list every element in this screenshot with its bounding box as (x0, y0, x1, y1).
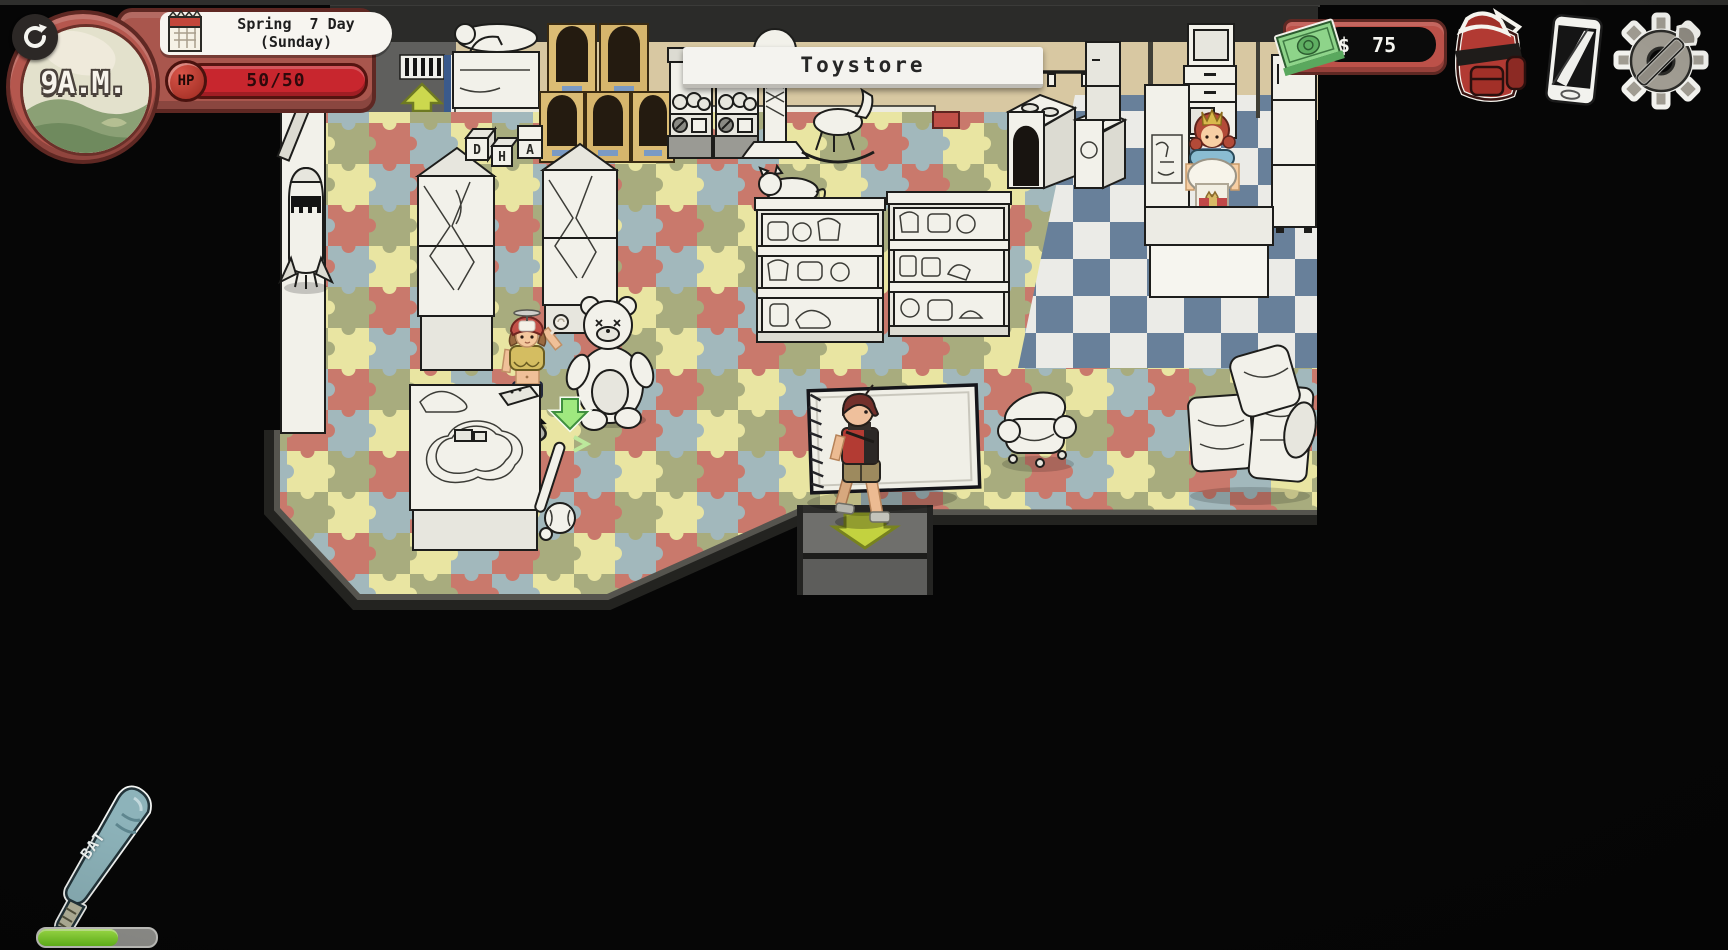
game-screen: D H A (0, 0, 1728, 950)
display-case-1 (418, 148, 494, 370)
backpack-icon (1437, 5, 1535, 109)
wall-sketch-picture (1152, 135, 1182, 183)
bat-icon (26, 780, 170, 936)
date-line2: (Sunday) (260, 33, 332, 51)
refresh-arrow-icon (20, 22, 50, 52)
calendar-icon (164, 5, 206, 55)
item-durability-bar (36, 927, 158, 948)
gear-wrench-icon (1610, 11, 1712, 111)
hotbar-item-bat[interactable] (26, 780, 170, 936)
time-label: 9A.M. (8, 66, 158, 101)
hp-label: HP (178, 73, 195, 89)
inventory-button[interactable] (1437, 5, 1535, 109)
hp-value: 50/50 (246, 70, 305, 91)
date-line1: Spring 7 Day (237, 15, 354, 33)
block-letter-h: H (498, 150, 506, 165)
phone-button[interactable] (1536, 10, 1613, 111)
wall-seam-2 (1256, 42, 1260, 118)
block-letter-a: A (526, 143, 534, 158)
date-text: Spring 7 Day(Sunday) (206, 15, 386, 51)
shop-counter (1145, 207, 1273, 297)
red-toy-box (933, 112, 959, 128)
hp-badge: HP (165, 60, 207, 102)
settings-button[interactable] (1610, 11, 1712, 111)
hp-bar: 50/50 (184, 63, 368, 99)
block-letter-d: D (473, 143, 481, 158)
train-set-table (410, 385, 540, 550)
toy-shelf-2 (887, 192, 1011, 336)
white-fridge (1272, 55, 1316, 233)
item-durability-fill (38, 929, 118, 946)
toystore-scene: D H A (0, 0, 1728, 950)
location-banner: Toystore (683, 47, 1043, 88)
laundry-sink (453, 24, 539, 108)
phone-icon (1536, 10, 1613, 111)
time-advance-button[interactable] (12, 14, 58, 60)
tall-cabinet-gray (1086, 42, 1120, 120)
money-amount: 75 (1372, 33, 1396, 57)
